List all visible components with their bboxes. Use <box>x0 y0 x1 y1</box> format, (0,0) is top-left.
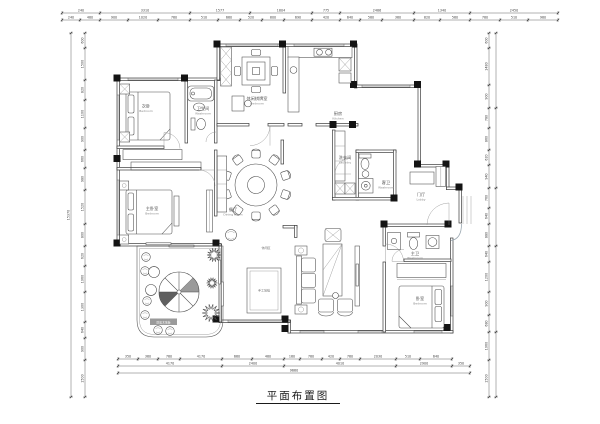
dimension-value: 360 <box>145 355 151 359</box>
dimension-value: 620 <box>484 154 488 160</box>
dimension-value: 240 <box>68 16 74 20</box>
dimension-value: 1100 <box>80 110 84 118</box>
floor-plan-canvas: 防腐木地板 <box>0 0 600 424</box>
dimension-value: 520 <box>248 16 254 20</box>
wall <box>383 224 451 227</box>
dimension-value: 640 <box>80 327 84 333</box>
wall <box>117 167 201 170</box>
dimension-value: 820 <box>80 87 84 93</box>
doormat <box>410 172 434 184</box>
room-label-guest-bath: 客卫Washroom <box>378 179 394 189</box>
parasol-shaded-panel <box>159 292 179 306</box>
dining-chair <box>252 149 260 158</box>
bedroom3-furniture <box>386 233 446 329</box>
column <box>181 75 188 82</box>
column <box>414 81 421 88</box>
dimension-value: 600 <box>80 37 84 43</box>
column <box>213 240 220 247</box>
dimension-value: 760 <box>171 16 177 20</box>
dimension-value: 780 <box>484 115 488 121</box>
dimension-value: 420 <box>328 355 334 359</box>
dimension-value: 780 <box>308 355 314 359</box>
wall <box>393 150 396 200</box>
pillow <box>128 214 134 231</box>
dining-chair <box>268 153 280 165</box>
dimension-value: 640 <box>484 213 488 219</box>
dimension-value: 240 <box>78 9 84 13</box>
room-label-master-bedroom: 主卧室Bedroom <box>145 205 159 216</box>
carpet-note: 手工地毯 <box>258 288 270 293</box>
tv-cabinet <box>355 246 360 306</box>
dimension-value: 980 <box>80 176 84 182</box>
nightstand <box>120 181 129 190</box>
parasol <box>159 272 199 312</box>
bench <box>174 196 179 226</box>
column <box>114 75 121 82</box>
dimension-value: 660 <box>234 355 240 359</box>
wall <box>459 187 462 223</box>
dimension-value: 420 <box>323 16 329 20</box>
nightstand <box>120 235 129 244</box>
toilet-tank <box>408 233 420 238</box>
wall <box>217 44 220 80</box>
column <box>349 121 356 128</box>
wall <box>383 262 386 332</box>
dimension-value: 860 <box>484 136 488 142</box>
deck-note-label: 防腐木地板 <box>157 320 171 324</box>
toilet-tank <box>191 118 195 130</box>
dimension-value: 820 <box>424 16 430 20</box>
living-furniture <box>247 229 360 317</box>
dining-chair <box>280 189 291 200</box>
side-table <box>295 305 307 314</box>
room-label-lobby: 门厅Lobby <box>416 191 425 201</box>
dimension-value: 760 <box>347 355 353 359</box>
svg-text:Washroom: Washroom <box>407 256 423 260</box>
dimension-value: 510 <box>405 355 411 359</box>
dining-chair <box>268 204 280 216</box>
column <box>456 184 463 191</box>
dimension-value: 800 <box>270 16 276 20</box>
dimension-value: 2030 <box>374 355 382 359</box>
column <box>381 221 388 228</box>
parasol-shaded-panel <box>179 278 199 292</box>
column <box>414 161 421 168</box>
dimension-value: 660 <box>226 16 232 20</box>
dimension-value: 9660 <box>290 369 298 373</box>
drawing-title: 平面布置图 <box>267 390 330 402</box>
column <box>282 325 289 332</box>
washer <box>359 179 374 194</box>
wall <box>294 225 297 237</box>
dimension-value: 900 <box>484 93 488 99</box>
dimension-value: 980 <box>540 16 546 20</box>
dimension-value: 1500 <box>80 60 84 68</box>
dining-chair <box>231 153 243 165</box>
dimension-value: 1060 <box>80 275 84 283</box>
dimension-value: 780 <box>482 16 488 20</box>
dimension-value: 600 <box>484 37 488 43</box>
sliding-door <box>219 260 221 284</box>
wall <box>214 80 217 143</box>
shower <box>388 233 401 250</box>
dimension-value: 1804 <box>277 9 285 13</box>
dimension-value: 4170 <box>166 362 174 366</box>
column <box>282 316 289 323</box>
dimension-value: 1577 <box>216 9 224 13</box>
svg-text:Kitchen: Kitchen <box>332 117 343 121</box>
svg-text:主卫: 主卫 <box>411 250 419 256</box>
dimension-value: 350 <box>125 355 131 359</box>
dimension-value: 800 <box>80 232 84 238</box>
dimension-value: 620 <box>80 253 84 259</box>
dimension-value: 2900 <box>420 362 428 366</box>
svg-text:Lobby: Lobby <box>416 197 425 201</box>
svg-text:Bedroom: Bedroom <box>145 212 159 216</box>
chair <box>252 87 261 93</box>
column <box>444 324 451 331</box>
chair <box>252 50 261 56</box>
dimension-value: 900 <box>80 346 84 352</box>
dimension-value: 690 <box>295 16 301 20</box>
dining-table <box>235 164 277 206</box>
column <box>214 41 221 48</box>
spiky-plant <box>207 278 218 289</box>
desk <box>232 96 244 111</box>
sofa-back <box>297 256 302 304</box>
wall <box>446 164 449 189</box>
game-table <box>242 57 270 85</box>
dimension-value: 660 <box>80 156 84 162</box>
wall <box>418 85 421 167</box>
dimension-value: 760 <box>484 195 488 201</box>
room-label-kitchen: 厨房Kitchen <box>332 110 343 121</box>
wardrobe <box>397 264 446 278</box>
dining-chair <box>252 212 260 221</box>
dimension-value: 1520 <box>80 203 84 211</box>
dimension-value: 880 <box>484 232 488 238</box>
dimension-value: 760 <box>166 355 172 359</box>
toilet <box>361 159 369 170</box>
dimension-value: 1500 <box>80 374 84 382</box>
column <box>279 41 286 48</box>
dining-furniture <box>217 149 291 241</box>
wall <box>268 123 284 126</box>
room-label-bath1: 卫生间Washroom <box>195 105 211 115</box>
dimension-value: 1500 <box>484 374 488 382</box>
dimension-value: 510 <box>201 16 207 20</box>
dimension-value: 1020 <box>139 16 147 20</box>
svg-text:Laundry: Laundry <box>339 160 351 164</box>
sofa-seat <box>302 258 316 272</box>
dimension-value: 640 <box>484 251 488 257</box>
dimension-value: 900 <box>484 300 488 306</box>
dimension-value: 4170 <box>197 355 205 359</box>
column <box>445 221 452 228</box>
chair <box>235 67 241 76</box>
dimension-value: 1300 <box>80 303 84 311</box>
dimension-value: 560 <box>452 16 458 20</box>
dimension-value: 775 <box>323 9 329 13</box>
dimension-value: 680 <box>484 320 488 326</box>
dimension-value: 510 <box>511 16 517 20</box>
dimension-value: 480 <box>265 355 271 359</box>
room-label-leisure-room: 休闲棋牌室Bedroom <box>247 95 268 106</box>
wall <box>356 150 359 200</box>
dimension-value: 4010 <box>336 362 344 366</box>
wardrobe <box>123 150 182 160</box>
dimension-value: 480 <box>87 16 93 20</box>
wall <box>288 123 302 126</box>
room-label-master-bath: 主卫Washroom <box>407 250 423 260</box>
svg-text:Washroom: Washroom <box>195 111 211 115</box>
dimension-value: 360 <box>395 16 401 20</box>
armchair <box>338 299 353 312</box>
column <box>330 121 337 128</box>
sink <box>362 171 369 178</box>
wall <box>283 44 286 93</box>
sliding-door <box>146 243 171 245</box>
dimension-value: 640 <box>347 16 353 20</box>
sliding-door <box>221 282 223 306</box>
wall <box>332 130 335 200</box>
dimension-value: 640 <box>433 355 439 359</box>
toilet <box>409 238 417 250</box>
armchair <box>319 299 334 312</box>
dimension-value: 1340 <box>438 9 446 13</box>
svg-text:Bedroom: Bedroom <box>250 102 264 106</box>
wall <box>332 197 396 200</box>
sofa-seat <box>302 289 316 303</box>
dimension-value: 900 <box>80 136 84 142</box>
column <box>114 155 121 162</box>
dimension-value: 1200 <box>484 273 488 281</box>
dimension-value: 2450 <box>510 9 518 13</box>
kitchen-furniture <box>288 47 352 112</box>
dimension-value: 580 <box>368 16 374 20</box>
svg-text:Washroom: Washroom <box>378 185 394 189</box>
dimension-value: 1480 <box>484 62 488 70</box>
svg-text:Bedroom: Bedroom <box>413 302 427 306</box>
pillow <box>128 95 134 113</box>
wall <box>450 238 453 333</box>
door-swing <box>199 170 215 186</box>
dimension-value: 900 <box>111 16 117 20</box>
side-table <box>295 246 307 255</box>
potted-plant <box>226 230 237 241</box>
dimension-value: 160 <box>289 355 295 359</box>
wall <box>185 80 188 143</box>
dining-chair <box>280 170 291 181</box>
door-swing <box>250 126 270 146</box>
wall <box>281 140 284 164</box>
pillow <box>128 193 134 210</box>
dimension-value: 2400 <box>249 362 257 366</box>
counter-left <box>288 57 299 112</box>
floor-plan-page: 防腐木地板 <box>0 0 600 424</box>
wall <box>217 123 249 126</box>
dimension-value: 940 <box>484 173 488 179</box>
chair <box>272 67 278 76</box>
toilet-tank <box>359 154 371 158</box>
cabinet <box>339 73 351 83</box>
sofa-seat <box>302 274 316 288</box>
svg-text:Bedroom: Bedroom <box>139 109 153 113</box>
wall <box>117 146 164 149</box>
title-block: 平面布置图 <box>256 390 340 404</box>
dimension-value: 3310 <box>141 9 149 13</box>
dimension-value: 15370 <box>66 210 70 221</box>
pillow <box>435 307 442 322</box>
leisure-area-note: 休闲区 <box>261 245 270 250</box>
pillow <box>435 290 442 305</box>
terrace: 防腐木地板 <box>137 246 223 337</box>
wall <box>356 150 396 153</box>
master-bedroom-furniture <box>120 170 215 247</box>
dimension-value: 350 <box>458 362 464 366</box>
stool <box>333 293 339 299</box>
dimension-value: 1060 <box>484 342 488 350</box>
dimension-value: 2486 <box>373 9 381 13</box>
room-label-laundry: 洗衣间Laundry <box>339 154 352 164</box>
toilet <box>197 119 206 130</box>
svg-text:Dining Room: Dining Room <box>223 212 242 216</box>
column <box>391 195 398 202</box>
